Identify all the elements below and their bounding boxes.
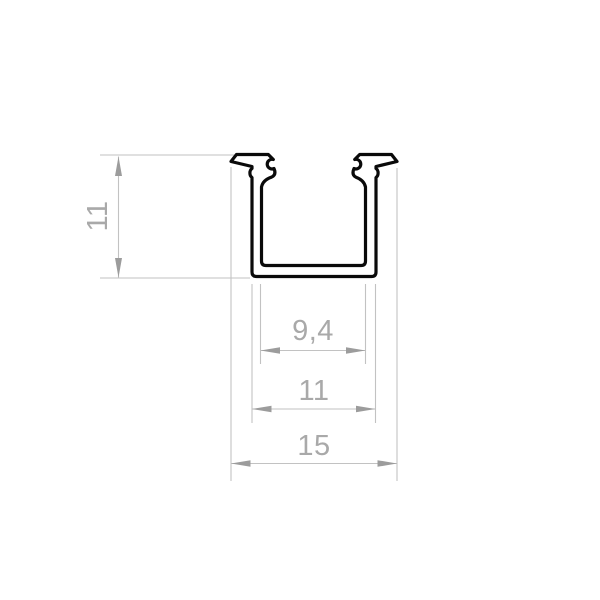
profile-outline bbox=[231, 155, 397, 277]
outer-width-arrow-left bbox=[252, 406, 272, 413]
inner-width-arrow-right bbox=[346, 347, 366, 354]
inner-width-dimension-label: 9,4 bbox=[292, 315, 334, 347]
inner-width-arrow-left bbox=[261, 347, 281, 354]
height-dimension-label: 11 bbox=[82, 200, 114, 231]
technical-drawing: 11 9,4 11 15 bbox=[0, 0, 600, 600]
overall-width-arrow-right bbox=[378, 460, 398, 467]
outer-width-arrow-right bbox=[356, 406, 376, 413]
outer-width-dimension-label: 11 bbox=[298, 375, 329, 407]
overall-width-arrow-left bbox=[231, 460, 251, 467]
height-arrow-down bbox=[115, 258, 122, 278]
height-arrow-up bbox=[115, 157, 122, 177]
overall-width-dimension-label: 15 bbox=[297, 430, 330, 462]
